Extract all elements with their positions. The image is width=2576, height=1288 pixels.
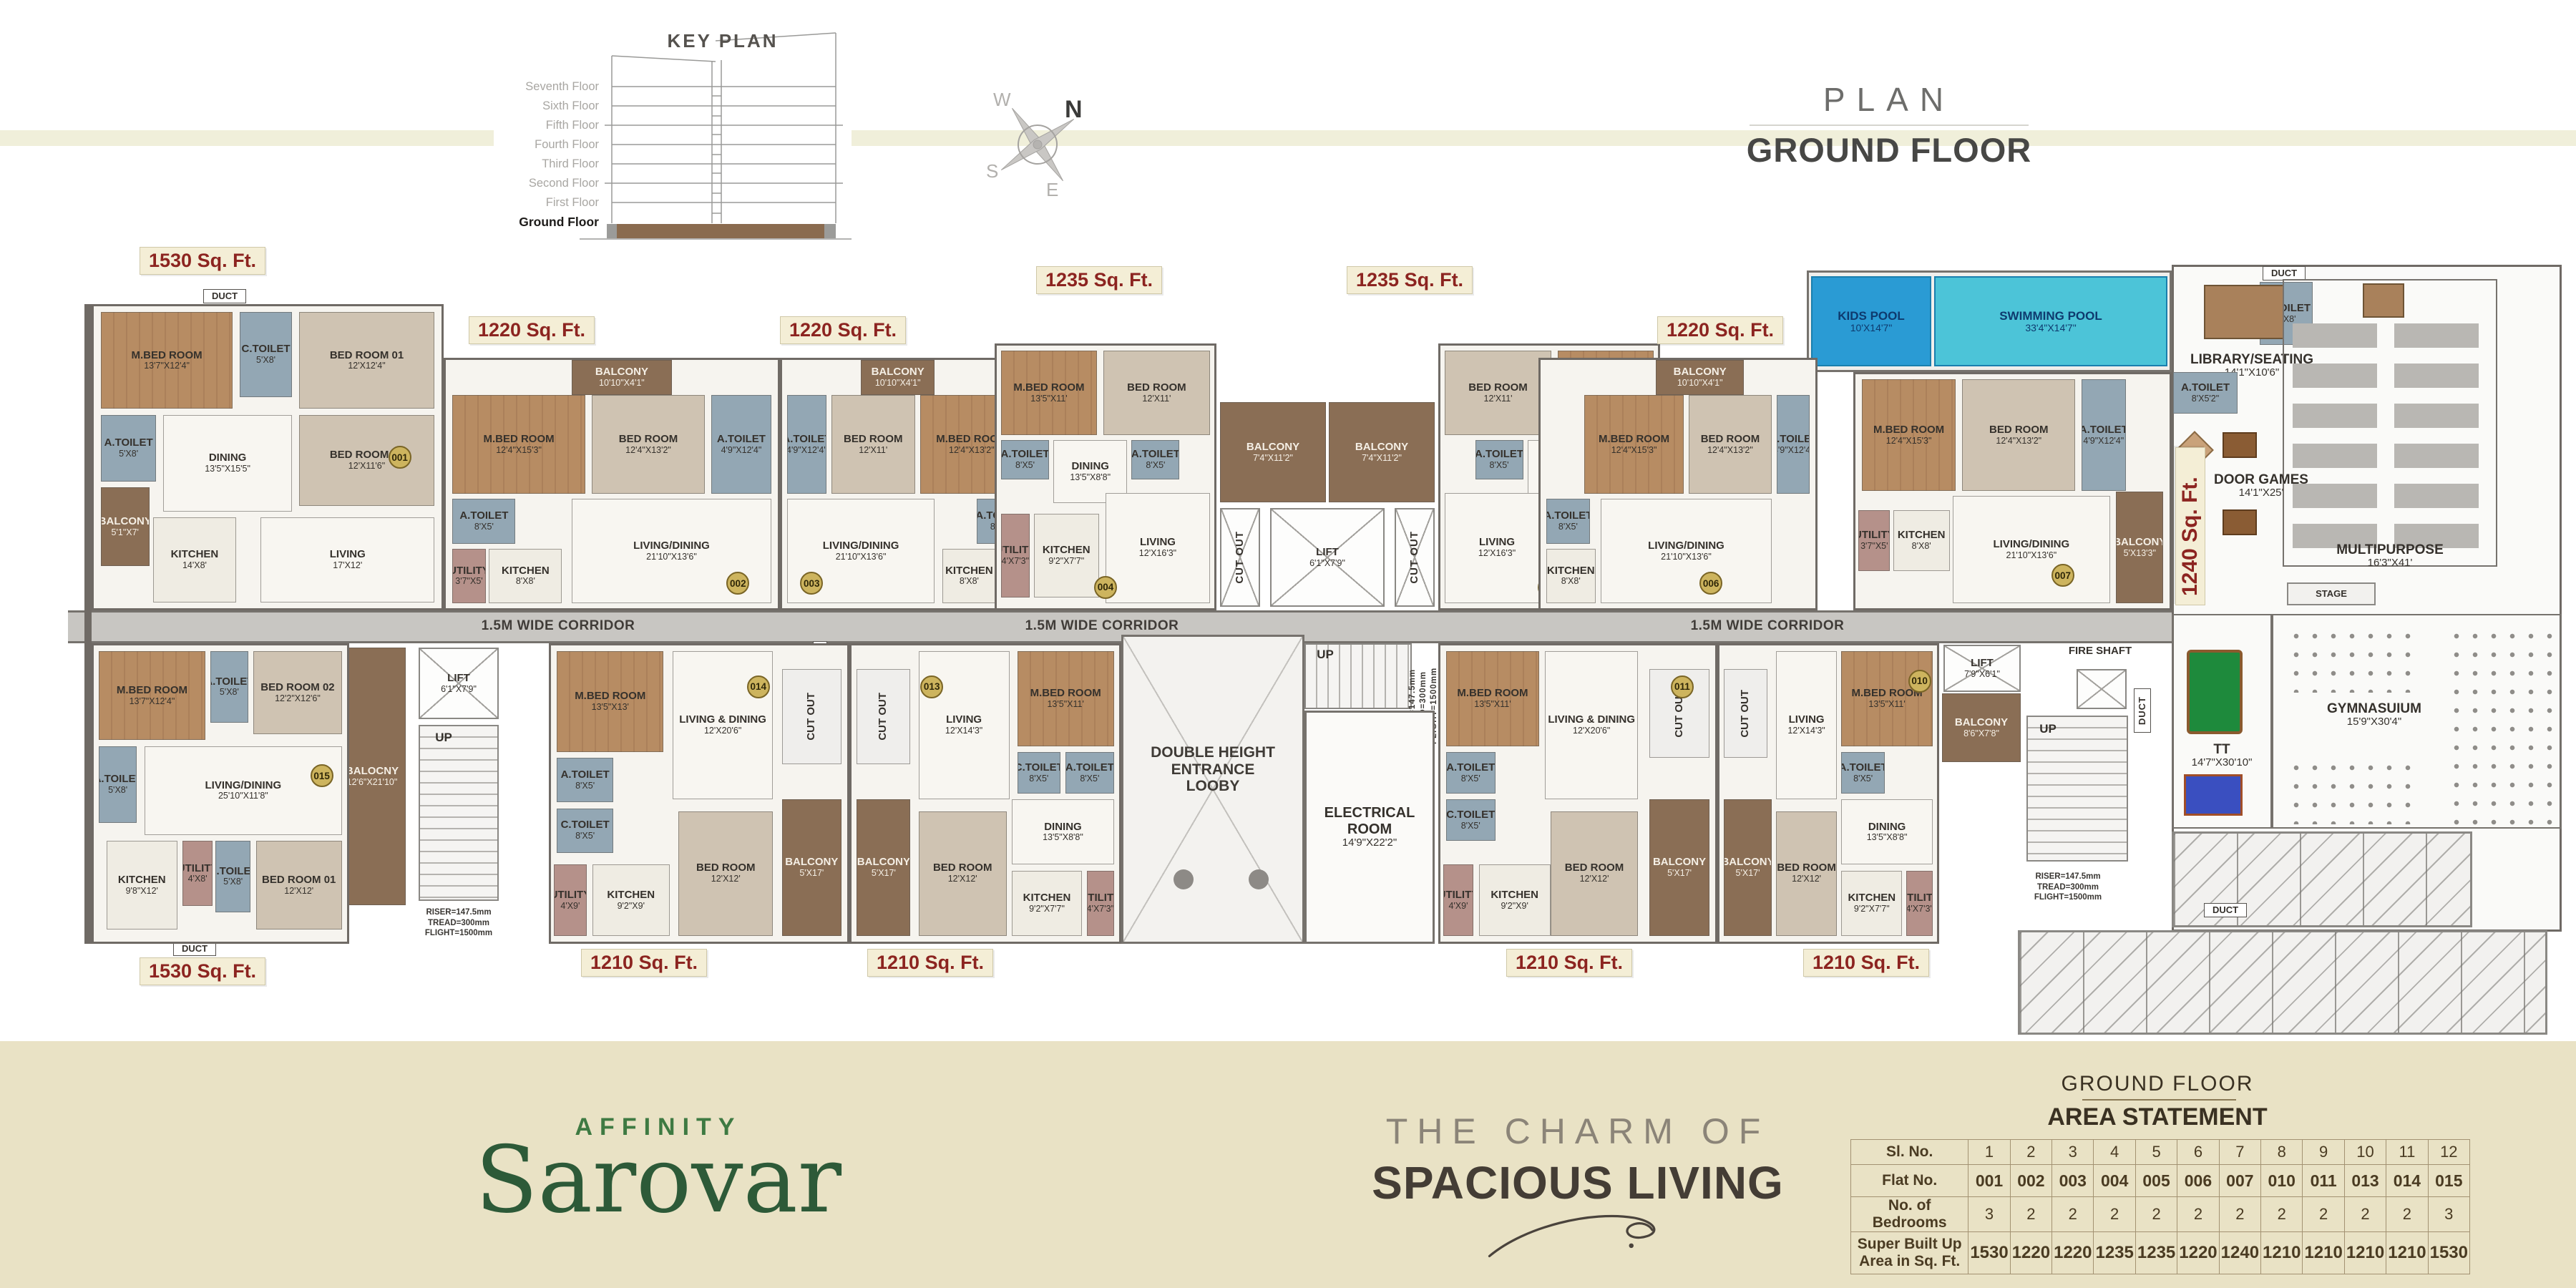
room-kitchen: KITCHEN8'X8': [942, 549, 997, 603]
room-bed-room-01: BED ROOM 0112'X12'4": [299, 312, 435, 409]
lobby-column: [1249, 869, 1269, 889]
accent-stripe: [0, 130, 2576, 146]
room-bed-room-01: BED ROOM 0112'X12': [256, 841, 342, 930]
area-statement-title1: GROUND FLOOR: [1989, 1072, 2326, 1096]
room-kitchen: KITCHEN14'X8': [153, 517, 237, 602]
a-toilet: A.TOILET8'X5'2": [2173, 372, 2238, 414]
library-table-icon: [2204, 285, 2284, 339]
unit-004: M.BED ROOM13'5"X11'BED ROOM12'X11'A.TOIL…: [995, 343, 1216, 610]
sqft-tag: 1210 Sq. Ft.: [1506, 949, 1632, 977]
flat-number-badge: 006: [1699, 572, 1722, 595]
room-a-toilet: A.TOILET8'X5': [1001, 440, 1049, 479]
sqft-tag: 1235 Sq. Ft.: [1036, 266, 1162, 294]
seating-rows: [2293, 323, 2377, 560]
key-plan-floor: Seventh Floor: [476, 77, 599, 97]
room-a-toilet: A.TOILET8'X5': [1446, 752, 1496, 794]
room-cut-out: CUT OUT: [857, 669, 910, 763]
table-icon: [2363, 283, 2404, 318]
swimming-pool: SWIMMING POOL33'4"X14'7": [1934, 276, 2167, 366]
key-plan-floor: Sixth Floor: [476, 97, 599, 116]
area-statement-row: Sl. No.123456789101112: [1851, 1140, 2470, 1165]
seating-rows: [2394, 323, 2479, 560]
room-a-toilet: A.TOILET8'X5': [557, 758, 613, 802]
unit-011: M.BED ROOM13'5"X11'LIVING & DINING12'X20…: [1438, 643, 1717, 944]
duct-label: DUCT: [2134, 688, 2151, 733]
room-balcony: BALCONY10'10"X4'1": [572, 360, 671, 395]
flat-number-badge: 002: [726, 572, 749, 595]
duct-label: DUCT: [203, 289, 246, 303]
room-bed-room: BED ROOM12'4"X13'2": [1689, 395, 1771, 494]
area-row-label: Super Built Up Area in Sq. Ft.: [1851, 1232, 1968, 1274]
room-c-toilet: C.TOILET5'X8': [240, 312, 292, 396]
room-a-toilet: A.TOILET8'X5': [1475, 440, 1523, 479]
stage: STAGE: [2287, 582, 2376, 605]
room-utility: UTILITY4'X7'3": [1906, 871, 1932, 936]
room-bed-room: BED ROOM12'X11': [831, 395, 915, 494]
area-cell: 1530: [1968, 1232, 2010, 1274]
sheet-title: PLAN GROUND FLOOR: [1717, 80, 2061, 170]
room-dining: DINING13'5"X15'5": [163, 415, 292, 512]
room-kitchen: KITCHEN9'2"X9': [592, 864, 670, 935]
sqft-tag: 1210 Sq. Ft.: [581, 949, 707, 977]
flat-number-badge: 003: [800, 572, 823, 595]
unit-007: M.BED ROOM12'4"X15'3"BED ROOM12'4"X13'2"…: [1853, 372, 2172, 610]
area-cell: 1220: [2177, 1232, 2219, 1274]
ground-floor-plan-sheet: KEY PLAN Seventh FloorSixth FloorFifth F…: [0, 0, 2576, 1288]
room-a-toilet: A.TOILET4'9"X12'4": [787, 395, 826, 494]
room-living-dining: LIVING/DINING21'10"X13'6": [1601, 499, 1771, 603]
multipurpose-label: MULTIPURPOSE16'3"X41': [2303, 538, 2477, 574]
room-balcony: BALCONY10'10"X4'1": [861, 360, 935, 395]
unit-003: BALCONY10'10"X4'1"A.TOILET4'9"X12'4"BED …: [780, 358, 1030, 610]
area-cell: 002: [2010, 1165, 2051, 1197]
area-cell: 5: [2135, 1140, 2177, 1165]
tt-label: TT14'7"X30'10": [2174, 738, 2270, 773]
stairs-left: [419, 725, 499, 901]
core-balcony: BALCONY8'6"X7'8": [1942, 693, 2021, 762]
room-living-dining: LIVING & DINING12'X20'6": [1545, 651, 1639, 799]
area-cell: 015: [2428, 1165, 2469, 1197]
key-plan-floor: Third Floor: [476, 155, 599, 174]
area-cell: 6: [2177, 1140, 2219, 1165]
room-utility: UTILITY4'X8': [182, 841, 213, 906]
area-row-label: Flat No.: [1851, 1165, 1968, 1197]
area-cell: 014: [2386, 1165, 2428, 1197]
area-cell: 2: [2344, 1197, 2386, 1232]
key-plan-floor: First Floor: [476, 193, 599, 213]
area-cell: 1220: [2052, 1232, 2094, 1274]
area-cell: 004: [2094, 1165, 2135, 1197]
area-cell: 12: [2428, 1140, 2469, 1165]
flat-number-badge: 010: [1908, 670, 1931, 693]
area-row-label: Sl. No.: [1851, 1140, 1968, 1165]
compass-icon: N W S E: [980, 84, 1095, 199]
up-label: UP: [428, 728, 459, 747]
unit-002: BALCONY10'10"X4'1"M.BED ROOM12'4"X15'3"B…: [444, 358, 780, 610]
room-c-toilet: C.TOILET8'X5': [1018, 752, 1060, 794]
core-balcony: BALCONY7'4"X11'2": [1220, 402, 1326, 502]
area-cell: 007: [2219, 1165, 2260, 1197]
room-m-bed-room: M.BED ROOM13'5"X11': [1841, 651, 1933, 746]
area-cell: 2: [2219, 1197, 2260, 1232]
tt-table-icon: [2184, 774, 2243, 816]
svg-text:N: N: [1065, 96, 1083, 123]
area-cell: 2: [2010, 1197, 2051, 1232]
flat-number-badge: 001: [389, 446, 411, 469]
room-a-toilet: A.TOILET4'9"X12'4": [711, 395, 771, 494]
sqft-tag: 1210 Sq. Ft.: [1803, 949, 1929, 977]
area-cell: 1235: [2094, 1232, 2135, 1274]
area-cell: 2: [2177, 1197, 2219, 1232]
room-a-toilet: A.TOILET4'9"X12'4": [1777, 395, 1810, 494]
area-cell: 7: [2219, 1140, 2260, 1165]
lift-center: LIFT6'1"X7'9": [1270, 508, 1385, 607]
room-m-bed-room: M.BED ROOM13'7"X12'4": [101, 312, 233, 409]
svg-text:E: E: [1046, 179, 1058, 199]
room-kitchen: KITCHEN9'2"X7'7": [1034, 514, 1099, 597]
kids-pool: KIDS POOL10'X14'7": [1811, 276, 1931, 366]
area-cell: 3: [1968, 1197, 2010, 1232]
sqft-tag: 1530 Sq. Ft.: [140, 247, 265, 275]
area-cell: 3: [2052, 1140, 2094, 1165]
key-plan-title: KEY PLAN: [605, 30, 841, 52]
room-a-toilet: A.TOILET8'X5': [1131, 440, 1179, 479]
area-cell: 001: [1968, 1165, 2010, 1197]
riser-note: RISER=147.5mm TREAD=300mm FLIGHT=1500mm: [413, 903, 504, 943]
title-divider: [1750, 125, 2029, 126]
room-dining: DINING13'5"X8'8": [1012, 799, 1113, 864]
room-m-bed-room: M.BED ROOM13'5"X11': [1001, 351, 1097, 434]
outer-wall: [84, 304, 92, 944]
unit-015: M.BED ROOM13'7"X12'4"A.TOILET5'X8'BED RO…: [92, 643, 349, 944]
key-plan-floor: Ground Floor: [476, 213, 599, 232]
lift-right: LIFT7'9"X6'1": [1943, 645, 2021, 692]
flat-number-badge: 011: [1671, 675, 1694, 698]
unit-010: CUT OUTLIVING12'X14'3"M.BED ROOM13'5"X11…: [1717, 643, 1939, 944]
room-living: LIVING12'X16'3": [1445, 493, 1549, 603]
room-living: LIVING12'X14'3": [919, 651, 1010, 799]
room-kitchen: KITCHEN9'2"X7'7": [1012, 871, 1081, 936]
area-cell: 1210: [2303, 1232, 2344, 1274]
corridor-label: 1.5M WIDE CORRIDOR: [1667, 613, 1868, 640]
room-kitchen: KITCHEN9'2"X7'7": [1841, 871, 1902, 936]
area-cell: 2: [2261, 1197, 2303, 1232]
room-utility: UTILITY4'X7'3": [1001, 514, 1030, 597]
room-a-toilet: A.TOILET8'X5': [452, 499, 515, 543]
flat-number-badge: 014: [747, 675, 770, 698]
room-kitchen: KITCHEN8'X8': [1546, 549, 1596, 603]
area-cell: 3: [2428, 1197, 2469, 1232]
room-living: LIVING17'X12': [260, 517, 434, 602]
up-label: UP: [2032, 720, 2064, 738]
room-dining: DINING13'5"X8'8": [1841, 799, 1933, 864]
room-utility: UTILITY4'X9': [1443, 864, 1473, 935]
carrom-icon: [2223, 509, 2257, 535]
electrical-room: ELECTRICAL ROOM14'9"X22'2": [1304, 711, 1435, 944]
riser-note: RISER=147.5mm TREAD=300mm FLIGHT=1500mm: [2011, 867, 2125, 907]
room-kitchen: KITCHEN8'X8': [1893, 510, 1950, 571]
gym-equipment: [2447, 627, 2555, 827]
gym-equipment: [2287, 758, 2416, 824]
room-a-toilet: A.TOILET5'X8': [101, 415, 157, 482]
room-utility: UTILITY3'7"X5': [452, 549, 485, 603]
area-cell: 2: [2094, 1197, 2135, 1232]
unit-006: BALCONY10'10"X4'1"M.BED ROOM12'4"X15'3"B…: [1538, 358, 1818, 610]
room-a-toilet: A.TOILET8'X5': [1546, 499, 1590, 543]
flat-number-badge: 013: [920, 675, 943, 698]
room-m-bed-room: M.BED ROOM13'5"X13': [557, 651, 663, 752]
unit-014: M.BED ROOM13'5"X13'LIVING & DINING12'X20…: [549, 643, 849, 944]
room-kitchen: KITCHEN9'8"X12': [107, 841, 177, 930]
lobby-column: [1174, 869, 1194, 889]
sqft-tag: 1210 Sq. Ft.: [867, 949, 993, 977]
flat-number-badge: 007: [2051, 564, 2074, 587]
fire-shaft: [2077, 669, 2127, 709]
room-bed-room: BED ROOM12'X11': [1445, 351, 1551, 434]
room-m-bed-room: M.BED ROOM12'4"X15'3": [1862, 379, 1956, 492]
sqft-tag: 1235 Sq. Ft.: [1347, 266, 1473, 294]
room-c-toilet: C.TOILET8'X5': [557, 809, 613, 853]
area-cell: 1240: [2219, 1232, 2260, 1274]
room-a-toilet: A.TOILET5'X8': [210, 651, 248, 722]
area-cell: 2: [2010, 1140, 2051, 1165]
key-plan-floor: Fourth Floor: [476, 135, 599, 155]
sqft-tag: 1240 Sq. Ft.: [2175, 447, 2205, 605]
room-m-bed-room: M.BED ROOM13'5"X11': [1446, 651, 1540, 746]
room-balcony: BALCONY5'X17': [857, 799, 910, 935]
brand-sarovar: Sarovar: [444, 1137, 873, 1224]
area-statement-row: No. of Bedrooms322222222223: [1851, 1197, 2470, 1232]
swoosh-icon: [1485, 1209, 1671, 1262]
area-cell: 011: [2303, 1165, 2344, 1197]
room-bed-room-02: BED ROOM 0212'2"X12'6": [253, 651, 342, 734]
gym-equipment: [2287, 627, 2416, 693]
area-cell: 11: [2386, 1140, 2428, 1165]
core-balcony: BALCONY7'4"X11'2": [1329, 402, 1435, 502]
sqft-tag: 1220 Sq. Ft.: [1657, 316, 1783, 344]
sheet-title-floor: GROUND FLOOR: [1717, 130, 2061, 170]
room-m-bed-room: M.BED ROOM12'4"X15'3": [452, 395, 585, 494]
area-cell: 2: [2386, 1197, 2428, 1232]
sqft-tag: 1220 Sq. Ft.: [469, 316, 595, 344]
flat-number-badge: 004: [1094, 576, 1117, 599]
sqft-tag: 1530 Sq. Ft.: [140, 957, 265, 985]
gym-label: GYMNASUIUM15'9"X30'4": [2308, 697, 2440, 733]
room-utility: UTILITY3'7"X5': [1858, 510, 1890, 571]
room-living: LIVING12'X16'3": [1106, 493, 1210, 603]
paved-terrace: [2018, 930, 2547, 1035]
room-cut-out: CUT OUT: [782, 669, 841, 763]
area-cell: 2: [2303, 1197, 2344, 1232]
room-cut-out: CUT OUT: [1724, 669, 1767, 758]
area-statement-underline: [2082, 1099, 2236, 1101]
door-games-label: DOOR GAMES14'1"X25': [2204, 468, 2318, 504]
room-living-dining: LIVING/DINING25'10"X11'8": [145, 746, 342, 835]
area-statement-row: Flat No.00100200300400500600701001101301…: [1851, 1165, 2470, 1197]
room-a-toilet: A.TOILET8'X5': [1065, 752, 1113, 794]
area-row-label: No. of Bedrooms: [1851, 1197, 1968, 1232]
key-plan-floor-list: Seventh FloorSixth FloorFifth FloorFourt…: [476, 77, 599, 232]
duct-label: DUCT: [173, 942, 216, 956]
room-bed-room: BED ROOM12'X12': [919, 811, 1007, 936]
room-bed-room: BED ROOM12'4"X13'2": [1962, 379, 2075, 492]
room-bed-room: BED ROOM12'X12': [1776, 811, 1837, 936]
duct-label: DUCT: [2204, 903, 2247, 917]
area-cell: 1220: [2010, 1232, 2051, 1274]
room-balcony: BALCONY5'X17': [1649, 799, 1709, 935]
room-c-toilet: C.TOILET5'X8': [215, 841, 251, 912]
area-cell: 1530: [2428, 1232, 2469, 1274]
room-m-bed-room: M.BED ROOM13'7"X12'4": [99, 651, 205, 740]
entrance-lobby: DOUBLE HEIGHT ENTRANCE LOOBY: [1121, 635, 1304, 944]
brand-logo: AFFINITY Sarovar: [444, 1113, 873, 1224]
area-cell: 10: [2344, 1140, 2386, 1165]
svg-text:S: S: [986, 160, 998, 182]
room-a-toilet: A.TOILET5'X8': [99, 746, 137, 824]
area-statement-title2: AREA STATEMENT: [1989, 1103, 2326, 1131]
room-m-bed-room: M.BED ROOM13'5"X11': [1018, 651, 1114, 746]
room-m-bed-room: M.BED ROOM12'4"X15'3": [1584, 395, 1683, 494]
area-cell: 4: [2094, 1140, 2135, 1165]
room-a-toilet: A.TOILET8'X5': [1841, 752, 1885, 794]
area-cell: 010: [2261, 1165, 2303, 1197]
room-bed-room: BED ROOM12'X12': [678, 811, 773, 936]
room-balcony: BALCONY5'X13'3": [2116, 492, 2163, 604]
area-cell: 1: [1968, 1140, 2010, 1165]
cut-out-shaft: CUT OUT: [1395, 508, 1435, 607]
unit-001: M.BED ROOM13'7"X12'4"C.TOILET5'X8'BED RO…: [92, 304, 444, 610]
corridor-label: 1.5M WIDE CORRIDOR: [458, 613, 658, 640]
room-living-dining: LIVING & DINING12'X20'6": [673, 651, 774, 799]
room-a-toilet: A.TOILET4'9"X12'4": [2082, 379, 2125, 492]
area-cell: 1210: [2261, 1232, 2303, 1274]
room-balcony: BALCONY5'X17': [1724, 799, 1772, 935]
carrom-icon: [2223, 432, 2257, 458]
room-utility: UTILITY4'X7'3": [1087, 871, 1113, 936]
room-bed-room: BED ROOM12'X12': [1551, 811, 1639, 936]
area-cell: 8: [2261, 1140, 2303, 1165]
area-cell: 2: [2052, 1197, 2094, 1232]
duct-label: DUCT: [2263, 266, 2306, 280]
fire-shaft-label: FIRE SHAFT: [2068, 635, 2132, 668]
area-cell: 005: [2135, 1165, 2177, 1197]
lift-left: LIFT6'1"X7'9": [419, 648, 499, 719]
tagline-line1: THE CHARM OF: [1363, 1111, 1792, 1152]
sqft-tag: 1220 Sq. Ft.: [780, 316, 906, 344]
billiards-table-icon: [2187, 650, 2243, 734]
room-living-dining: LIVING/DINING21'10"X13'6": [1953, 496, 2110, 603]
area-cell: 006: [2177, 1165, 2219, 1197]
area-statement-table: Sl. No.123456789101112Flat No.0010020030…: [1850, 1139, 2470, 1274]
room-utility: UTILITY4'X9': [554, 864, 587, 935]
sheet-title-plan: PLAN: [1717, 80, 2061, 119]
tagline: THE CHARM OF SPACIOUS LIVING: [1363, 1111, 1792, 1266]
room-bed-room: BED ROOM12'X11': [1103, 351, 1210, 434]
room-balcony: BALCONY10'10"X4'1": [1656, 360, 1744, 395]
key-plan-floor: Second Floor: [476, 174, 599, 193]
room-bed-room: BED ROOM12'4"X13'2": [592, 395, 705, 494]
key-plan-floor: Fifth Floor: [476, 116, 599, 135]
svg-text:W: W: [993, 89, 1011, 110]
room-balcony: BALCONY5'1"X7': [101, 487, 150, 566]
area-cell: 013: [2344, 1165, 2386, 1197]
area-cell: 9: [2303, 1140, 2344, 1165]
area-cell: 2: [2135, 1197, 2177, 1232]
flat-number-badge: 015: [311, 764, 333, 787]
area-cell: 1235: [2135, 1232, 2177, 1274]
room-bed-room-02: BED ROOM 0212'X11'6": [299, 415, 435, 506]
room-c-toilet: C.TOILET8'X5': [1446, 799, 1496, 841]
area-cell: 003: [2052, 1165, 2094, 1197]
area-cell: 1210: [2344, 1232, 2386, 1274]
cut-out-shaft: CUT OUT: [1220, 508, 1260, 607]
room-kitchen: KITCHEN9'2"X9': [1479, 864, 1551, 935]
up-label: UP: [1309, 645, 1341, 664]
unit-013: CUT OUTLIVING12'X14'3"M.BED ROOM13'5"X11…: [849, 643, 1121, 944]
room-living: LIVING12'X14'3": [1776, 651, 1837, 799]
tagline-line2: SPACIOUS LIVING: [1363, 1156, 1792, 1209]
room-balcony: BALCONY5'X17': [782, 799, 841, 935]
area-statement-row: Super Built Up Area in Sq. Ft.1530122012…: [1851, 1232, 2470, 1274]
area-cell: 1210: [2386, 1232, 2428, 1274]
room-kitchen: KITCHEN8'X8': [489, 549, 562, 603]
